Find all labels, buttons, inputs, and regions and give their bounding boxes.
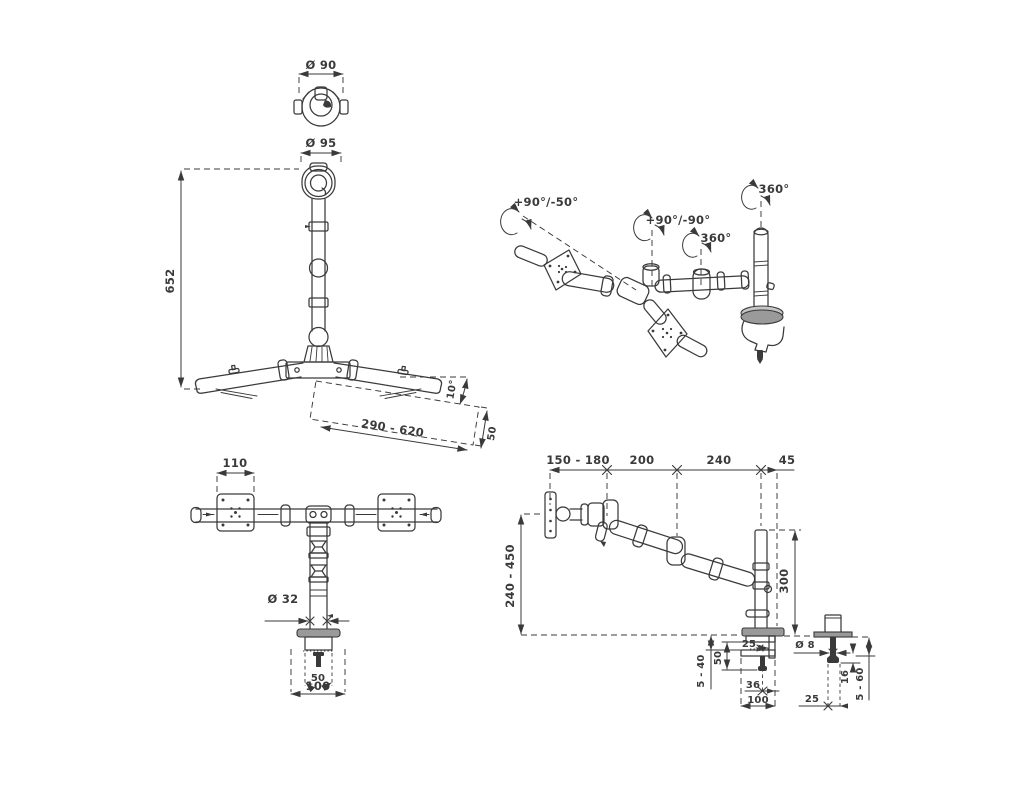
clamp-jaw [741, 650, 775, 656]
collar [663, 275, 671, 293]
left-arm-end [513, 244, 549, 268]
desk-clamp-side [521, 628, 813, 671]
dim-label-seg4: 45 [779, 453, 796, 467]
vesa-plate-right [648, 309, 687, 357]
bolt-detail: Ø 8 16 5 - 60 25 [794, 615, 875, 710]
glide-strip-left [216, 389, 257, 399]
crossbar-front [191, 505, 441, 526]
bar-end-cap-left [191, 508, 201, 523]
rotation-pole-360: 360° [742, 182, 790, 230]
perspective-view: +90°/-50° +90°/-90° 360° 360° [501, 182, 790, 364]
dim-label-top-diameter: Ø 90 [306, 58, 337, 72]
dim-label-seg1: 150 - 180 [546, 453, 610, 467]
pole-lower-front [307, 523, 333, 629]
dim-chain-top: 150 - 180 200 240 45 [546, 453, 795, 626]
collar [741, 271, 749, 289]
dim-arc-tilt [460, 379, 467, 404]
monitor-head-side [545, 492, 618, 547]
clamp-body [305, 637, 332, 650]
lever [323, 100, 331, 108]
bolt-shaft [316, 656, 321, 667]
height-lever [746, 610, 769, 617]
center-hub [304, 346, 333, 362]
dim-label-clamp-width: 100 [306, 679, 331, 693]
dim-pole-diameter: Ø 32 [265, 592, 349, 625]
side-tab-right [340, 100, 348, 114]
pole-head-top [294, 87, 348, 126]
dim-label-jaw-depth: 25 [742, 639, 756, 650]
dim-clamp-details: 25 5 - 40 50 36 100 [696, 636, 779, 708]
rotation-arrow-icon [683, 233, 699, 257]
clamp-flange [742, 628, 784, 636]
dim-label-seg3: 240 [707, 453, 732, 467]
front-view: Ø 95 652 [163, 136, 499, 450]
dim-height-range: 240 - 450 [503, 514, 544, 634]
ball-joint [556, 507, 570, 521]
side-tab-left [294, 100, 302, 114]
rotation-pivot-range: +90°/-90° [634, 213, 711, 288]
crossbar-arms [195, 359, 441, 398]
side-view: 150 - 180 200 240 45 [503, 453, 813, 708]
bolt-nut [827, 657, 839, 663]
dim-label-offset: 25 [805, 694, 819, 705]
dim-line-end-width [481, 411, 487, 448]
dim-label-pole-height: 300 [777, 569, 791, 594]
joint-ball [309, 328, 328, 347]
collar [345, 505, 354, 526]
dim-label-below-desk: 16 [840, 670, 851, 684]
ring [581, 504, 588, 525]
rotation-arrow-icon [501, 209, 519, 235]
drawing-canvas: Ø 90 Ø 95 652 [0, 0, 1024, 811]
dim-pole-height: 300 [769, 530, 801, 634]
arm-screw-left [228, 365, 239, 374]
pole-side [746, 530, 772, 629]
rotation-tilt-range: +90°/-50° [501, 195, 636, 290]
vesa-plate-right-front [378, 494, 415, 531]
rotation-label-arm-360: 360° [701, 231, 732, 245]
dim-label-height-range: 240 - 450 [503, 544, 517, 608]
crossbar-right-end [675, 333, 709, 359]
grommet-flange [814, 632, 852, 637]
rotation-label-pole-360: 360° [759, 182, 790, 196]
top-view: Ø 90 [294, 58, 348, 126]
desk-clamp-front: 50 100 [291, 629, 345, 694]
pole-front [305, 199, 328, 347]
vesa-plate-left-front [217, 494, 254, 531]
dim-label-pole-diameter: Ø 32 [268, 592, 299, 606]
horizontal-arm [655, 276, 749, 293]
vesa-plate-left [544, 250, 581, 290]
dim-label-head-diameter: Ø 95 [306, 136, 337, 150]
desk-clamp-3d [741, 306, 784, 364]
clamp-right-wall [769, 636, 775, 658]
collar [717, 272, 725, 290]
dim-label-throat: 50 [713, 651, 724, 665]
collar [281, 505, 290, 526]
perspective-structure [513, 228, 784, 364]
bar-end-cap-right [431, 508, 441, 523]
lever [595, 521, 608, 542]
dim-label-end-width: 50 [486, 426, 499, 442]
dim-label-bolt-diameter: Ø 8 [795, 639, 815, 651]
dim-label-vesa-width: 110 [223, 456, 248, 470]
technical-drawing: Ø 90 Ø 95 652 [0, 0, 1024, 811]
rotation-label-tilt-range: +90°/-50° [514, 195, 579, 209]
bolt-head [313, 652, 324, 656]
bottom-front-view: 110 [191, 456, 441, 694]
dim-label-reach: 290 - 620 [360, 416, 425, 440]
clamp-flange [297, 629, 340, 637]
dim-label-base-width: 100 [747, 695, 768, 706]
pole-head-front [302, 163, 335, 199]
pole-3d [754, 228, 775, 316]
dim-label-desk-thickness: 5 - 40 [696, 654, 707, 687]
dim-label-seg2: 200 [630, 453, 655, 467]
dim-label-bolt-offset: 36 [746, 680, 760, 691]
dim-label-desk-range: 5 - 60 [855, 667, 866, 700]
dim-label-height: 652 [163, 269, 177, 294]
dim-label-tilt: 10° [445, 379, 459, 400]
clamp-bolt [760, 656, 765, 667]
rotation-arrow-icon [742, 185, 758, 209]
elbow-2 [667, 537, 685, 565]
